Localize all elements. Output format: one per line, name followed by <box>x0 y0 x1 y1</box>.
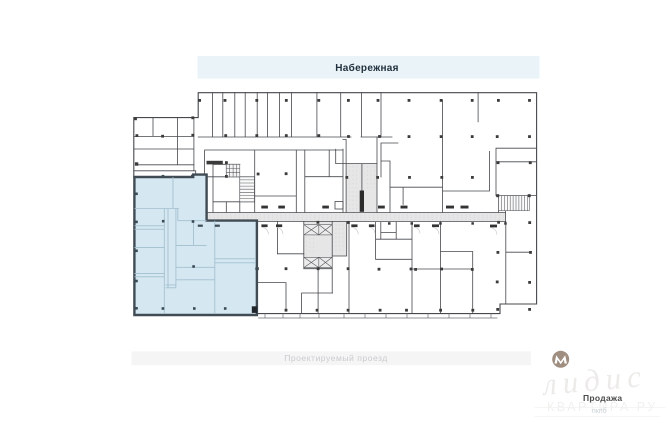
svg-text:пкпб: пкпб <box>592 407 607 415</box>
svg-text:Набережная: Набережная <box>335 62 399 74</box>
svg-text:Проектируемый проезд: Проектируемый проезд <box>284 353 388 363</box>
svg-text:Продажа: Продажа <box>583 393 622 403</box>
